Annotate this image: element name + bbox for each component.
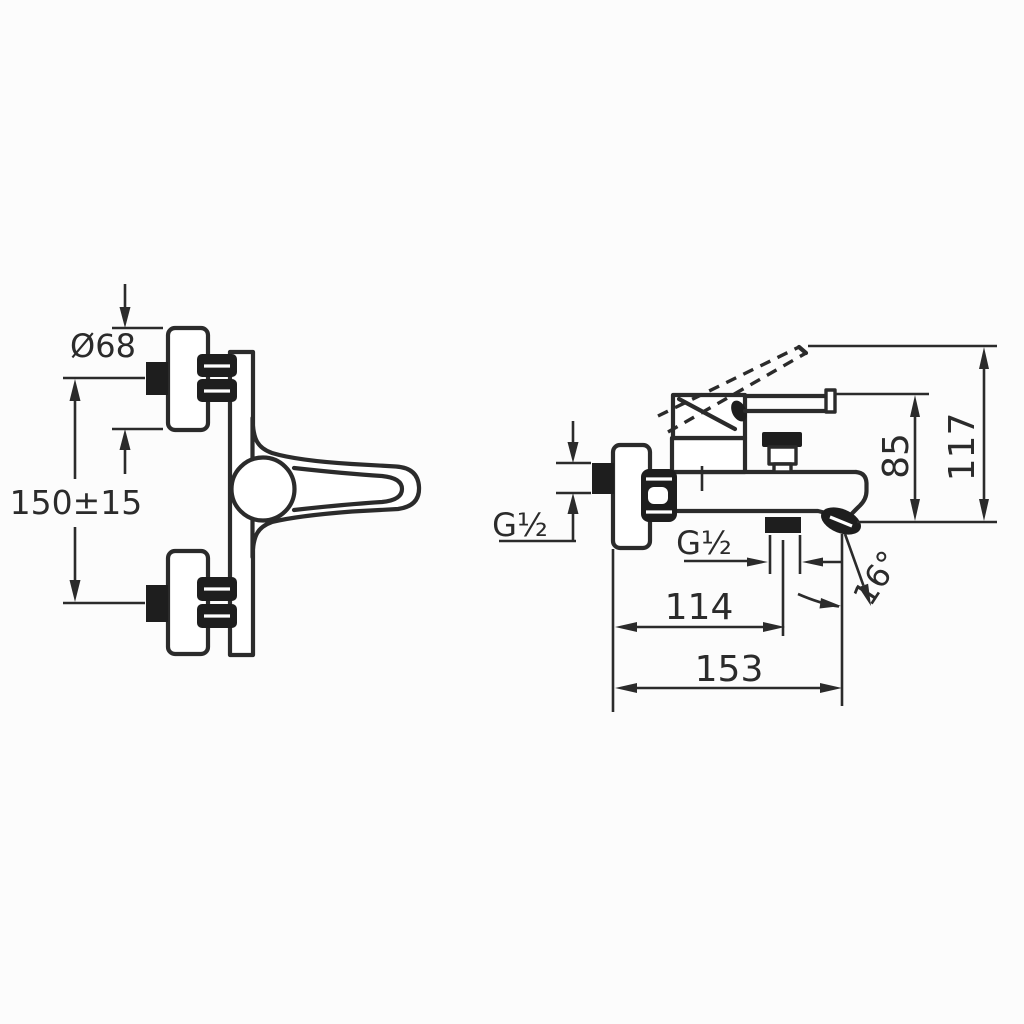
arrowhead xyxy=(802,558,823,567)
side-lever-end-cap xyxy=(826,390,835,412)
mixer-technical-drawing: Ø68 150±15 xyxy=(0,0,1024,1024)
arrowhead xyxy=(615,622,637,632)
arrowhead xyxy=(910,499,920,521)
arrowhead xyxy=(747,558,768,567)
arrowhead xyxy=(568,493,579,514)
side-dimension-wall-thread: G½ xyxy=(492,421,591,544)
arrowhead xyxy=(70,379,81,401)
side-diverter-knob xyxy=(762,432,802,472)
arrowhead xyxy=(820,683,842,693)
arrowhead xyxy=(120,307,131,328)
dim-outlet-thread: G½ xyxy=(676,524,732,562)
drawing-canvas: Ø68 150±15 xyxy=(0,0,1024,1024)
side-handle-base xyxy=(672,438,745,472)
arrowhead xyxy=(979,499,989,521)
dim-overall-height: 117 xyxy=(942,413,983,482)
arrowhead xyxy=(910,395,920,417)
side-coupling-nut xyxy=(641,469,677,522)
arrowhead xyxy=(979,347,989,369)
side-dimension-outlet-thread: G½ xyxy=(676,524,843,574)
side-shower-outlet xyxy=(765,517,801,533)
dim-wall-thread: G½ xyxy=(492,506,548,544)
dim-overall-depth: 153 xyxy=(695,649,764,690)
side-lever-arm xyxy=(745,390,835,412)
arrowhead xyxy=(568,442,579,463)
arrowhead xyxy=(120,429,131,450)
dim-escutcheon-diameter: Ø68 xyxy=(70,327,136,365)
front-view xyxy=(146,328,419,655)
dim-spout-angle: 16° xyxy=(845,544,908,612)
dim-connection-centers: 150±15 xyxy=(10,483,143,522)
arrowhead xyxy=(615,683,637,693)
front-handle-ball xyxy=(232,458,295,521)
dim-spout-reach: 114 xyxy=(665,587,734,628)
front-dimension-connection-centers: 150±15 xyxy=(10,378,145,603)
side-view xyxy=(592,347,867,548)
dim-handle-height: 85 xyxy=(876,433,917,479)
front-bottom-escutcheon-plate xyxy=(168,551,208,654)
side-dimension-spout-angle: 16° xyxy=(798,534,908,612)
front-top-wall-connector xyxy=(146,362,168,395)
side-wall-connector xyxy=(592,463,614,494)
arrowhead xyxy=(70,580,81,602)
front-bottom-wall-connector xyxy=(146,585,168,622)
